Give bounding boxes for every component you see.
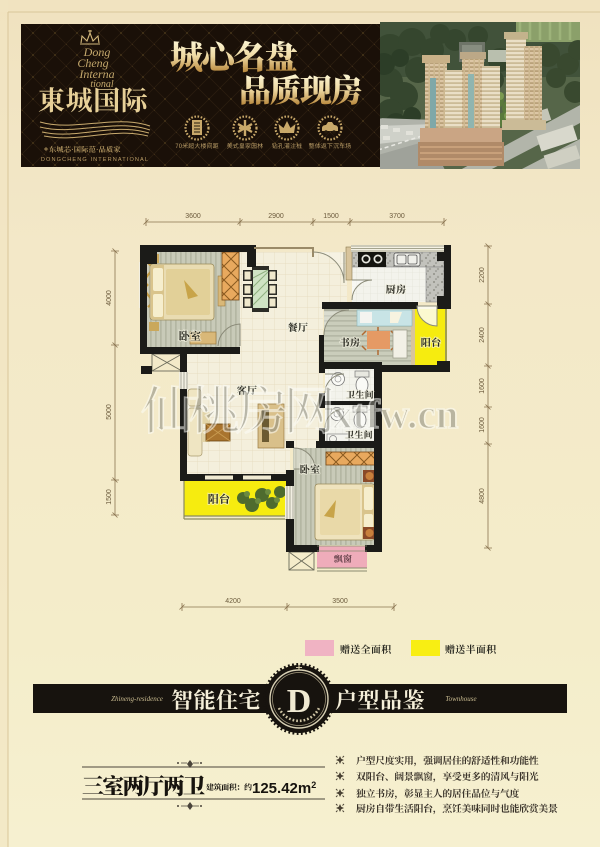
svg-text:2200: 2200	[479, 267, 486, 283]
svg-text:2400: 2400	[479, 327, 486, 343]
svg-text:xtfw.cn: xtfw.cn	[332, 391, 459, 437]
svg-text:4200: 4200	[225, 598, 241, 605]
svg-text:4800: 4800	[479, 488, 486, 504]
svg-text:DONGCHENG INTERNATIONAL: DONGCHENG INTERNATIONAL	[41, 157, 149, 163]
svg-text:3600: 3600	[185, 213, 201, 220]
svg-text:5000: 5000	[106, 404, 113, 420]
svg-text:125.42m2: 125.42m2	[252, 780, 316, 797]
svg-text:4000: 4000	[106, 290, 113, 306]
svg-text:1500: 1500	[323, 213, 339, 220]
svg-text:Zhineng-residence: Zhineng-residence	[111, 695, 163, 703]
svg-text:1500: 1500	[106, 489, 113, 505]
svg-text:3500: 3500	[332, 598, 348, 605]
svg-text:3700: 3700	[389, 213, 405, 220]
svg-text:2900: 2900	[268, 213, 284, 220]
svg-text:Townhouse: Townhouse	[445, 695, 476, 703]
svg-text:1600: 1600	[479, 417, 486, 433]
svg-text:1600: 1600	[479, 378, 486, 394]
svg-text:D: D	[287, 683, 312, 720]
svg-text:tional: tional	[90, 79, 114, 90]
